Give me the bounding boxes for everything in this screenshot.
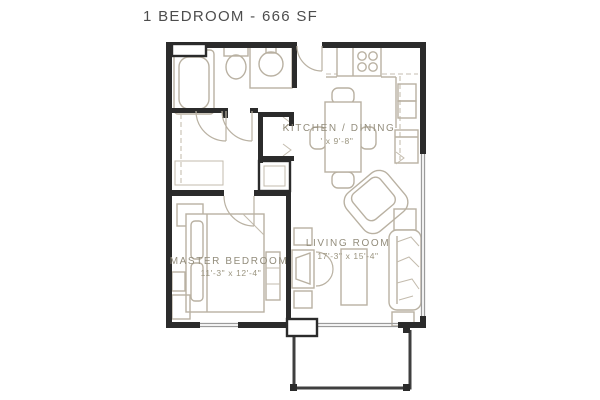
closet-door-swing [196,111,226,141]
closet-shelf [175,161,223,185]
patio-post [403,384,410,391]
kitchen-cabinet [398,84,416,101]
sink-icon [259,52,283,76]
toilet-bowl [226,55,246,79]
media-speaker [294,291,312,308]
floor-plan-drawing: KITCHEN / DINING ' x 9'-8" LIVING ROOM 1… [0,0,600,400]
patio [287,319,410,391]
patio-post [290,384,297,391]
dining-chair [332,172,354,188]
entry-door-swing [297,46,322,71]
tv-icon [296,253,310,284]
refrigerator [395,130,418,163]
nightstand [172,272,185,291]
storage-unit [287,319,317,336]
floorplan-page: { "title": "1 BEDROOM - 666 SF", "colors… [0,0,600,400]
kitchen-dining-label: KITCHEN / DINING [283,123,396,134]
bath-shelf [172,44,206,56]
shelf-chevron-icon [283,144,291,156]
living-room-label: LIVING ROOM [306,238,390,249]
master-bedroom-dims: 11'-3" x 12'-4" [201,268,262,278]
master-bedroom-label: MASTER BEDROOM [170,256,289,267]
living-room-dims: 17'-3" x 15'-4" [317,251,378,261]
kitchen-dining-dims: ' x 9'-8" [321,136,354,146]
patio-post [403,326,410,333]
kitchen-cabinet [398,101,416,118]
